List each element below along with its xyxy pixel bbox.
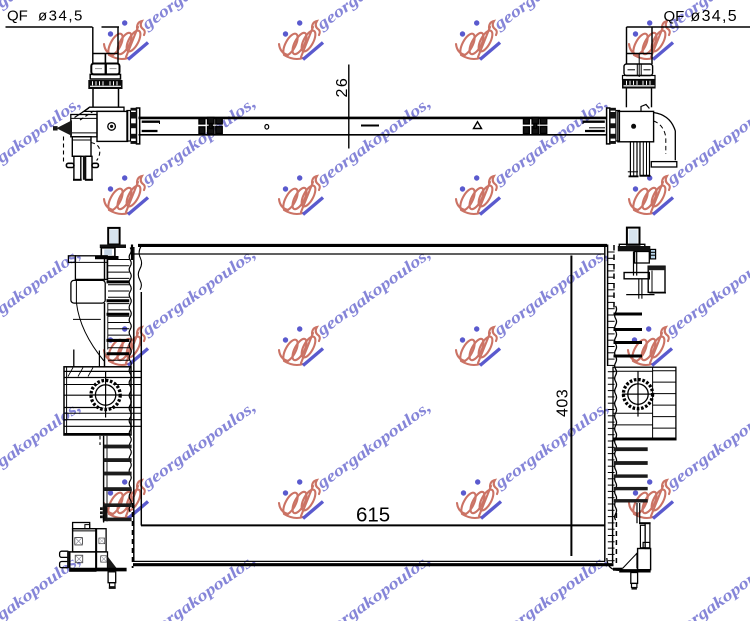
svg-text:ø34,5: ø34,5	[691, 8, 738, 25]
svg-text:26: 26	[334, 77, 351, 98]
svg-text:QF: QF	[7, 8, 28, 25]
svg-text:ø34,5: ø34,5	[38, 8, 84, 25]
svg-text:QF: QF	[664, 8, 685, 25]
svg-text:615: 615	[356, 504, 390, 527]
svg-text:403: 403	[555, 389, 572, 417]
